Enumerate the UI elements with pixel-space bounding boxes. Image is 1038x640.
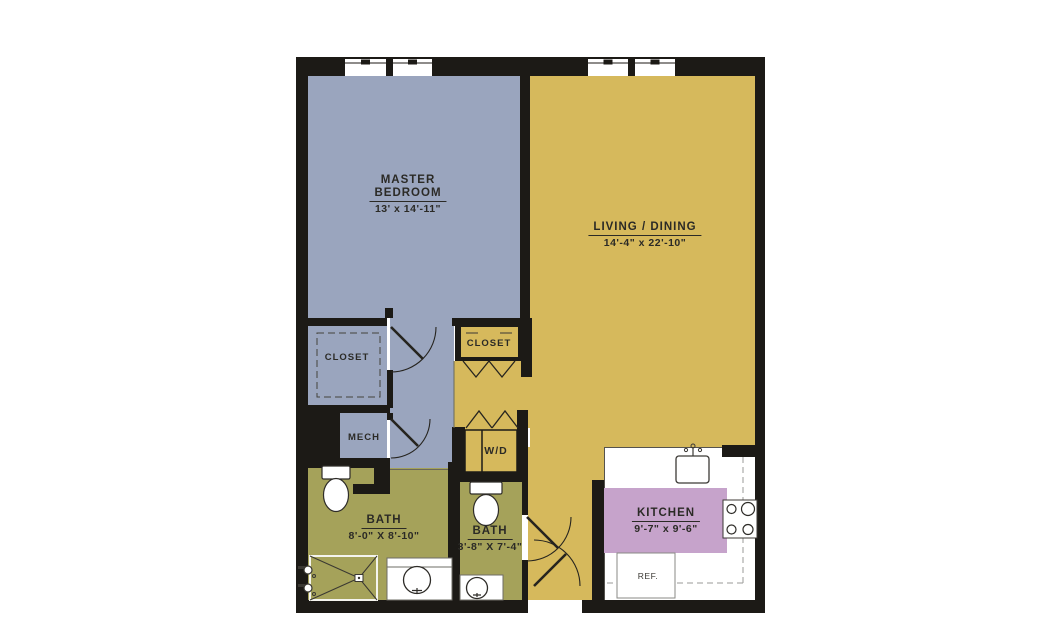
- room-name: BEDROOM: [369, 187, 446, 202]
- room-dimensions: 13' x 14'-11": [369, 203, 446, 216]
- room-name: BATH: [361, 514, 406, 529]
- room-dimensions: 8'-0" X 8'-10": [349, 530, 420, 543]
- room-name: MASTER: [369, 174, 446, 187]
- mech-door-icon: [391, 419, 430, 458]
- room-name: KITCHEN: [632, 507, 700, 522]
- toilet-icon: [322, 466, 350, 512]
- bath-2-label: BATH 3'-8" X 7'-4": [458, 525, 523, 554]
- kitchen-label: KITCHEN 9'-7" x 9'-6": [632, 507, 700, 536]
- closet-1-door-icon: [391, 327, 436, 372]
- bath-1-label: BATH 8'-0" X 8'-10": [349, 514, 420, 543]
- toilet-icon: [470, 482, 502, 526]
- closet-2-bifold-icon: [463, 361, 515, 377]
- refrigerator-label: REF.: [638, 570, 658, 583]
- master-bedroom-label: MASTER BEDROOM 13' x 14'-11": [369, 174, 446, 216]
- closet-shelf-dashed-icon: [317, 333, 380, 397]
- zone-boundary-lines: [390, 361, 454, 470]
- floor-plan: MASTER BEDROOM 13' x 14'-11" LIVING / DI…: [0, 0, 1038, 640]
- washer-dryer-label: W/D: [484, 445, 507, 458]
- vanity-sink-icon: [387, 558, 452, 600]
- mech-label: MECH: [348, 431, 380, 444]
- shower-icon: [298, 556, 377, 600]
- room-dimensions: 3'-8" X 7'-4": [458, 541, 523, 554]
- room-name: BATH: [467, 525, 512, 540]
- washer-dryer-bifold-icon: [466, 411, 518, 428]
- kitchen-sink-icon: [676, 444, 709, 483]
- window-frame-icon: [345, 60, 675, 64]
- closet-2-label: CLOSET: [467, 337, 512, 350]
- living-dining-label: LIVING / DINING 14'-4" x 22'-10": [588, 221, 701, 250]
- stove-icon: [723, 500, 757, 538]
- room-dimensions: 9'-7" x 9'-6": [632, 523, 700, 536]
- room-name: LIVING / DINING: [588, 221, 701, 236]
- vanity-sink-icon: [460, 575, 503, 600]
- closet-1-label: CLOSET: [325, 351, 370, 364]
- room-dimensions: 14'-4" x 22'-10": [588, 237, 701, 250]
